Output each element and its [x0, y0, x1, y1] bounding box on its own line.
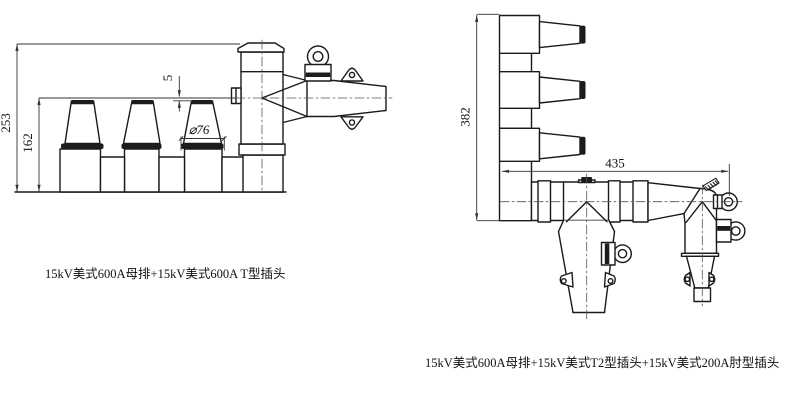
bushing-cone-2: [124, 104, 161, 144]
eye-bolt: [305, 46, 331, 81]
dim-253-label: 253: [0, 113, 13, 133]
horizontal-barrel: [532, 180, 649, 222]
bushing-cone-1: [65, 104, 100, 144]
left-drawing-busbar-tplug: [15, 40, 392, 192]
dim-382-label: 382: [458, 107, 473, 127]
bushing-cones-right: [540, 22, 581, 159]
dim-162-label: 162: [20, 133, 35, 153]
technical-drawing-sheet: 253 162 5 ⌀76: [0, 0, 800, 400]
dim-dia76-label: ⌀76: [189, 122, 210, 137]
elbow-eye-bolt-side: [717, 220, 745, 243]
plug-arm-barrel: [307, 81, 386, 117]
busbar-base-blocks: [60, 149, 244, 192]
left-drawing-caption: 15kV美式600A母排+15kV美式600A T型插头: [45, 267, 286, 281]
dim-5-label: 5: [160, 75, 175, 82]
bushing-caps-right: [580, 26, 586, 155]
t-plug-cap: [238, 43, 284, 52]
t2-eye-bolt: [602, 243, 632, 266]
left-dimension-labels: 253 162 5 ⌀76: [0, 75, 210, 153]
drawing-svg: 253 162 5 ⌀76: [0, 0, 800, 400]
right-drawing-caption: 15kV美式600A母排+15kV美式T2型插头+15kV美式200A肘型插头: [425, 355, 779, 370]
clamp-wedge: [703, 178, 719, 190]
dim-435-label: 435: [605, 156, 625, 171]
